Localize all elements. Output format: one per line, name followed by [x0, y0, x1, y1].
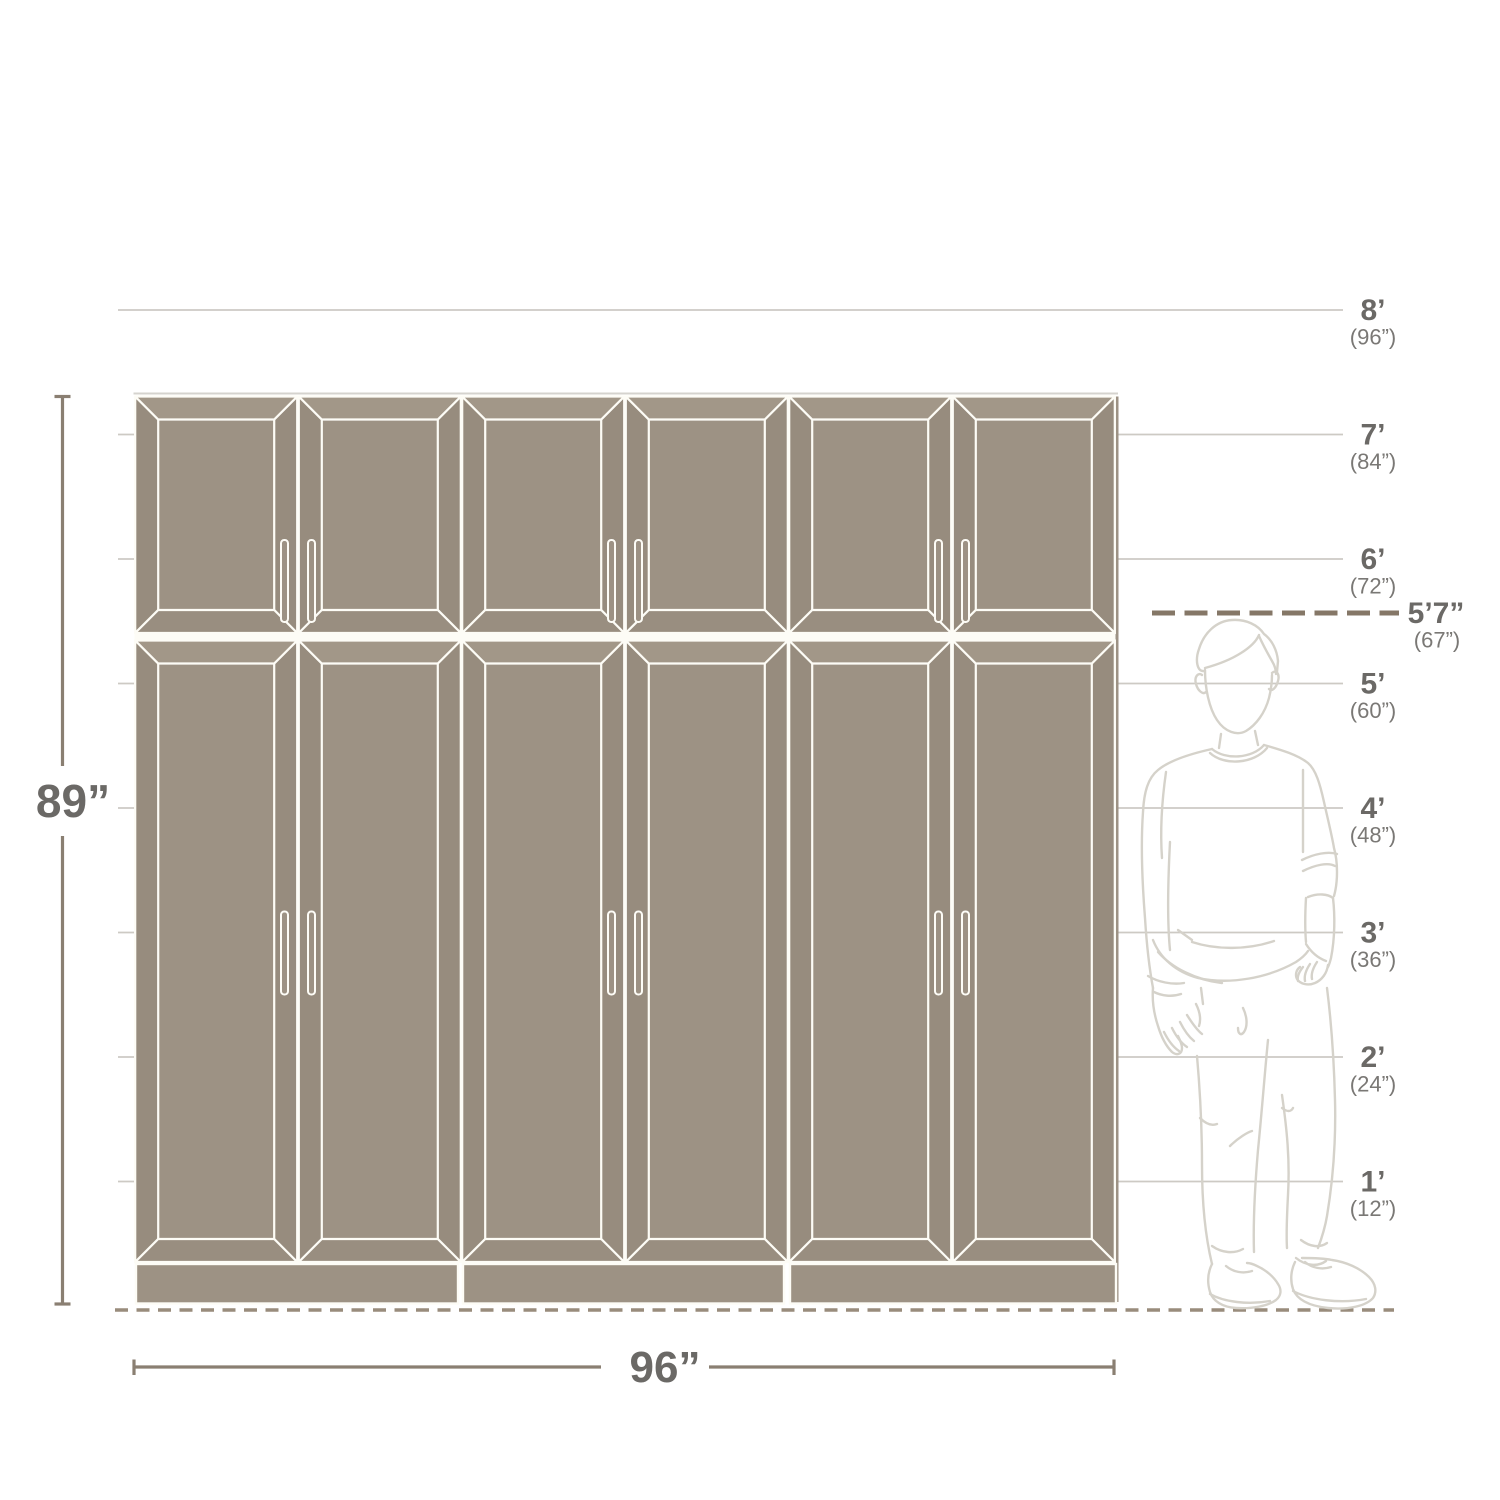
- svg-text:(24”): (24”): [1350, 1072, 1396, 1097]
- svg-text:89”: 89”: [36, 775, 110, 827]
- svg-text:5’7”: 5’7”: [1408, 597, 1465, 630]
- svg-text:(67”): (67”): [1414, 628, 1460, 653]
- svg-text:(96”): (96”): [1350, 325, 1396, 350]
- svg-text:4’: 4’: [1360, 792, 1385, 825]
- svg-text:(84”): (84”): [1350, 449, 1396, 474]
- svg-text:2’: 2’: [1360, 1041, 1385, 1074]
- svg-text:3’: 3’: [1360, 917, 1385, 950]
- svg-text:8’: 8’: [1360, 294, 1385, 327]
- svg-text:(72”): (72”): [1350, 574, 1396, 599]
- svg-text:(12”): (12”): [1350, 1196, 1396, 1221]
- svg-text:1’: 1’: [1360, 1166, 1385, 1199]
- svg-text:(48”): (48”): [1350, 823, 1396, 848]
- svg-text:96”: 96”: [630, 1343, 701, 1392]
- svg-text:5’: 5’: [1360, 668, 1385, 701]
- svg-text:7’: 7’: [1360, 419, 1385, 452]
- svg-text:(36”): (36”): [1350, 947, 1396, 972]
- svg-text:(60”): (60”): [1350, 698, 1396, 723]
- svg-text:6’: 6’: [1360, 543, 1385, 576]
